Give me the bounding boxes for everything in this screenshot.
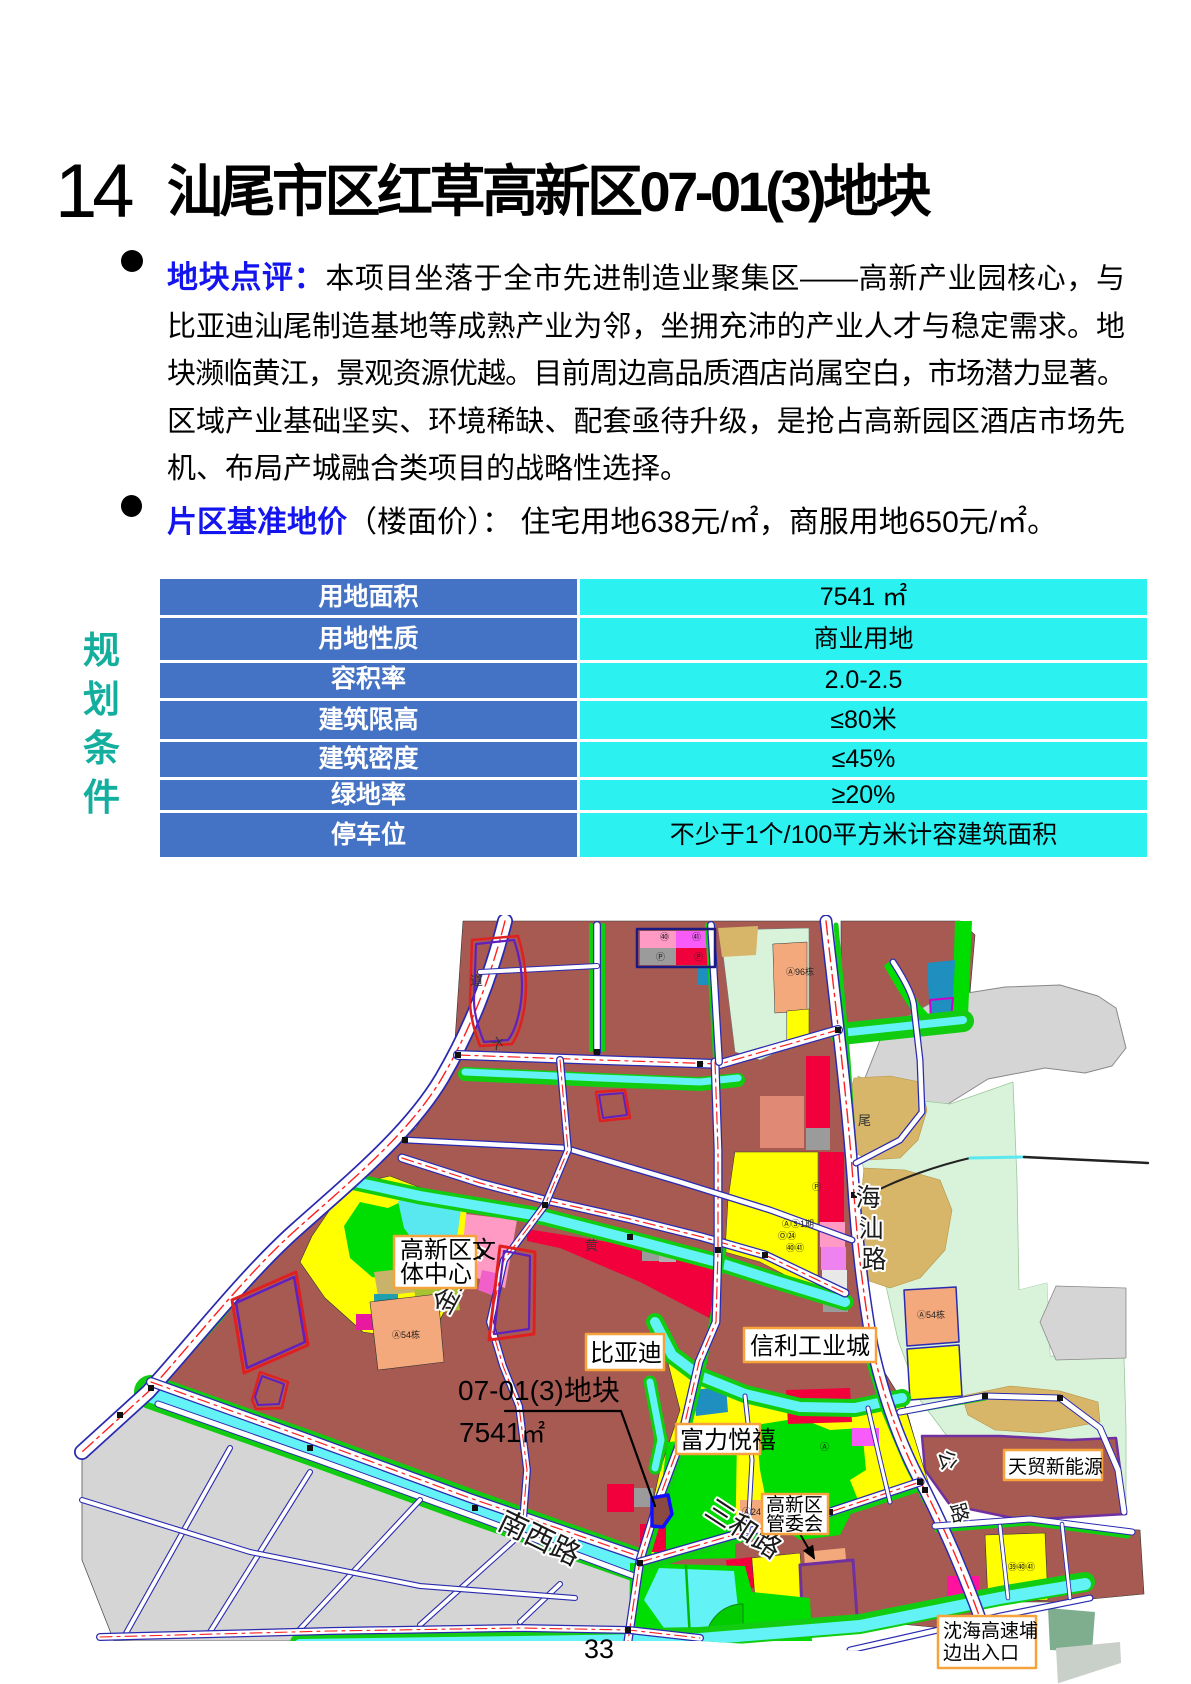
svg-text:信利工业城: 信利工业城 xyxy=(750,1333,870,1360)
svg-text:07-01(3)地块: 07-01(3)地块 xyxy=(458,1375,620,1406)
svg-text:汕: 汕 xyxy=(858,1215,883,1243)
svg-text:海: 海 xyxy=(855,1184,880,1212)
svg-text:Ⓐ54栋: Ⓐ54栋 xyxy=(392,1329,420,1340)
svg-text:Ⓟ: Ⓟ xyxy=(656,952,665,962)
svg-text:Ⓟ: Ⓟ xyxy=(694,952,703,962)
svg-text:㊵: ㊵ xyxy=(660,932,669,942)
svg-text:Ⓐ: Ⓐ xyxy=(820,1442,829,1452)
svg-text:富力悦禧: 富力悦禧 xyxy=(680,1427,776,1454)
svg-text:Ⓞ㉔: Ⓞ㉔ xyxy=(778,1231,796,1241)
svg-text:Ⓟ: Ⓟ xyxy=(812,1182,821,1192)
svg-text:㊵㊶: ㊵㊶ xyxy=(786,1243,804,1253)
svg-text:道: 道 xyxy=(470,973,483,988)
svg-text:㊴㊵㊶: ㊴㊵㊶ xyxy=(1008,1562,1035,1572)
svg-text:7541㎡: 7541㎡ xyxy=(459,1417,545,1448)
svg-text:尾: 尾 xyxy=(858,1113,871,1128)
svg-text:管委会: 管委会 xyxy=(766,1513,823,1535)
svg-text:高新区文: 高新区文 xyxy=(400,1237,496,1264)
svg-text:路: 路 xyxy=(861,1246,886,1274)
svg-text:沈海高速埔: 沈海高速埔 xyxy=(943,1620,1038,1642)
svg-text:比亚迪: 比亚迪 xyxy=(590,1340,662,1367)
svg-text:体中心: 体中心 xyxy=(400,1261,472,1288)
svg-text:黄: 黄 xyxy=(585,1238,598,1253)
svg-text:㊶: ㊶ xyxy=(692,932,701,942)
svg-text:高新区: 高新区 xyxy=(766,1494,823,1516)
svg-text:ⒶⓈ1期: ⒶⓈ1期 xyxy=(782,1219,814,1229)
svg-text:边出入口: 边出入口 xyxy=(943,1642,1019,1664)
svg-text:Ⓐ96栋: Ⓐ96栋 xyxy=(786,966,814,977)
svg-text:Ⓐ54栋: Ⓐ54栋 xyxy=(917,1309,945,1320)
svg-text:天贸新能源: 天贸新能源 xyxy=(1008,1456,1103,1478)
